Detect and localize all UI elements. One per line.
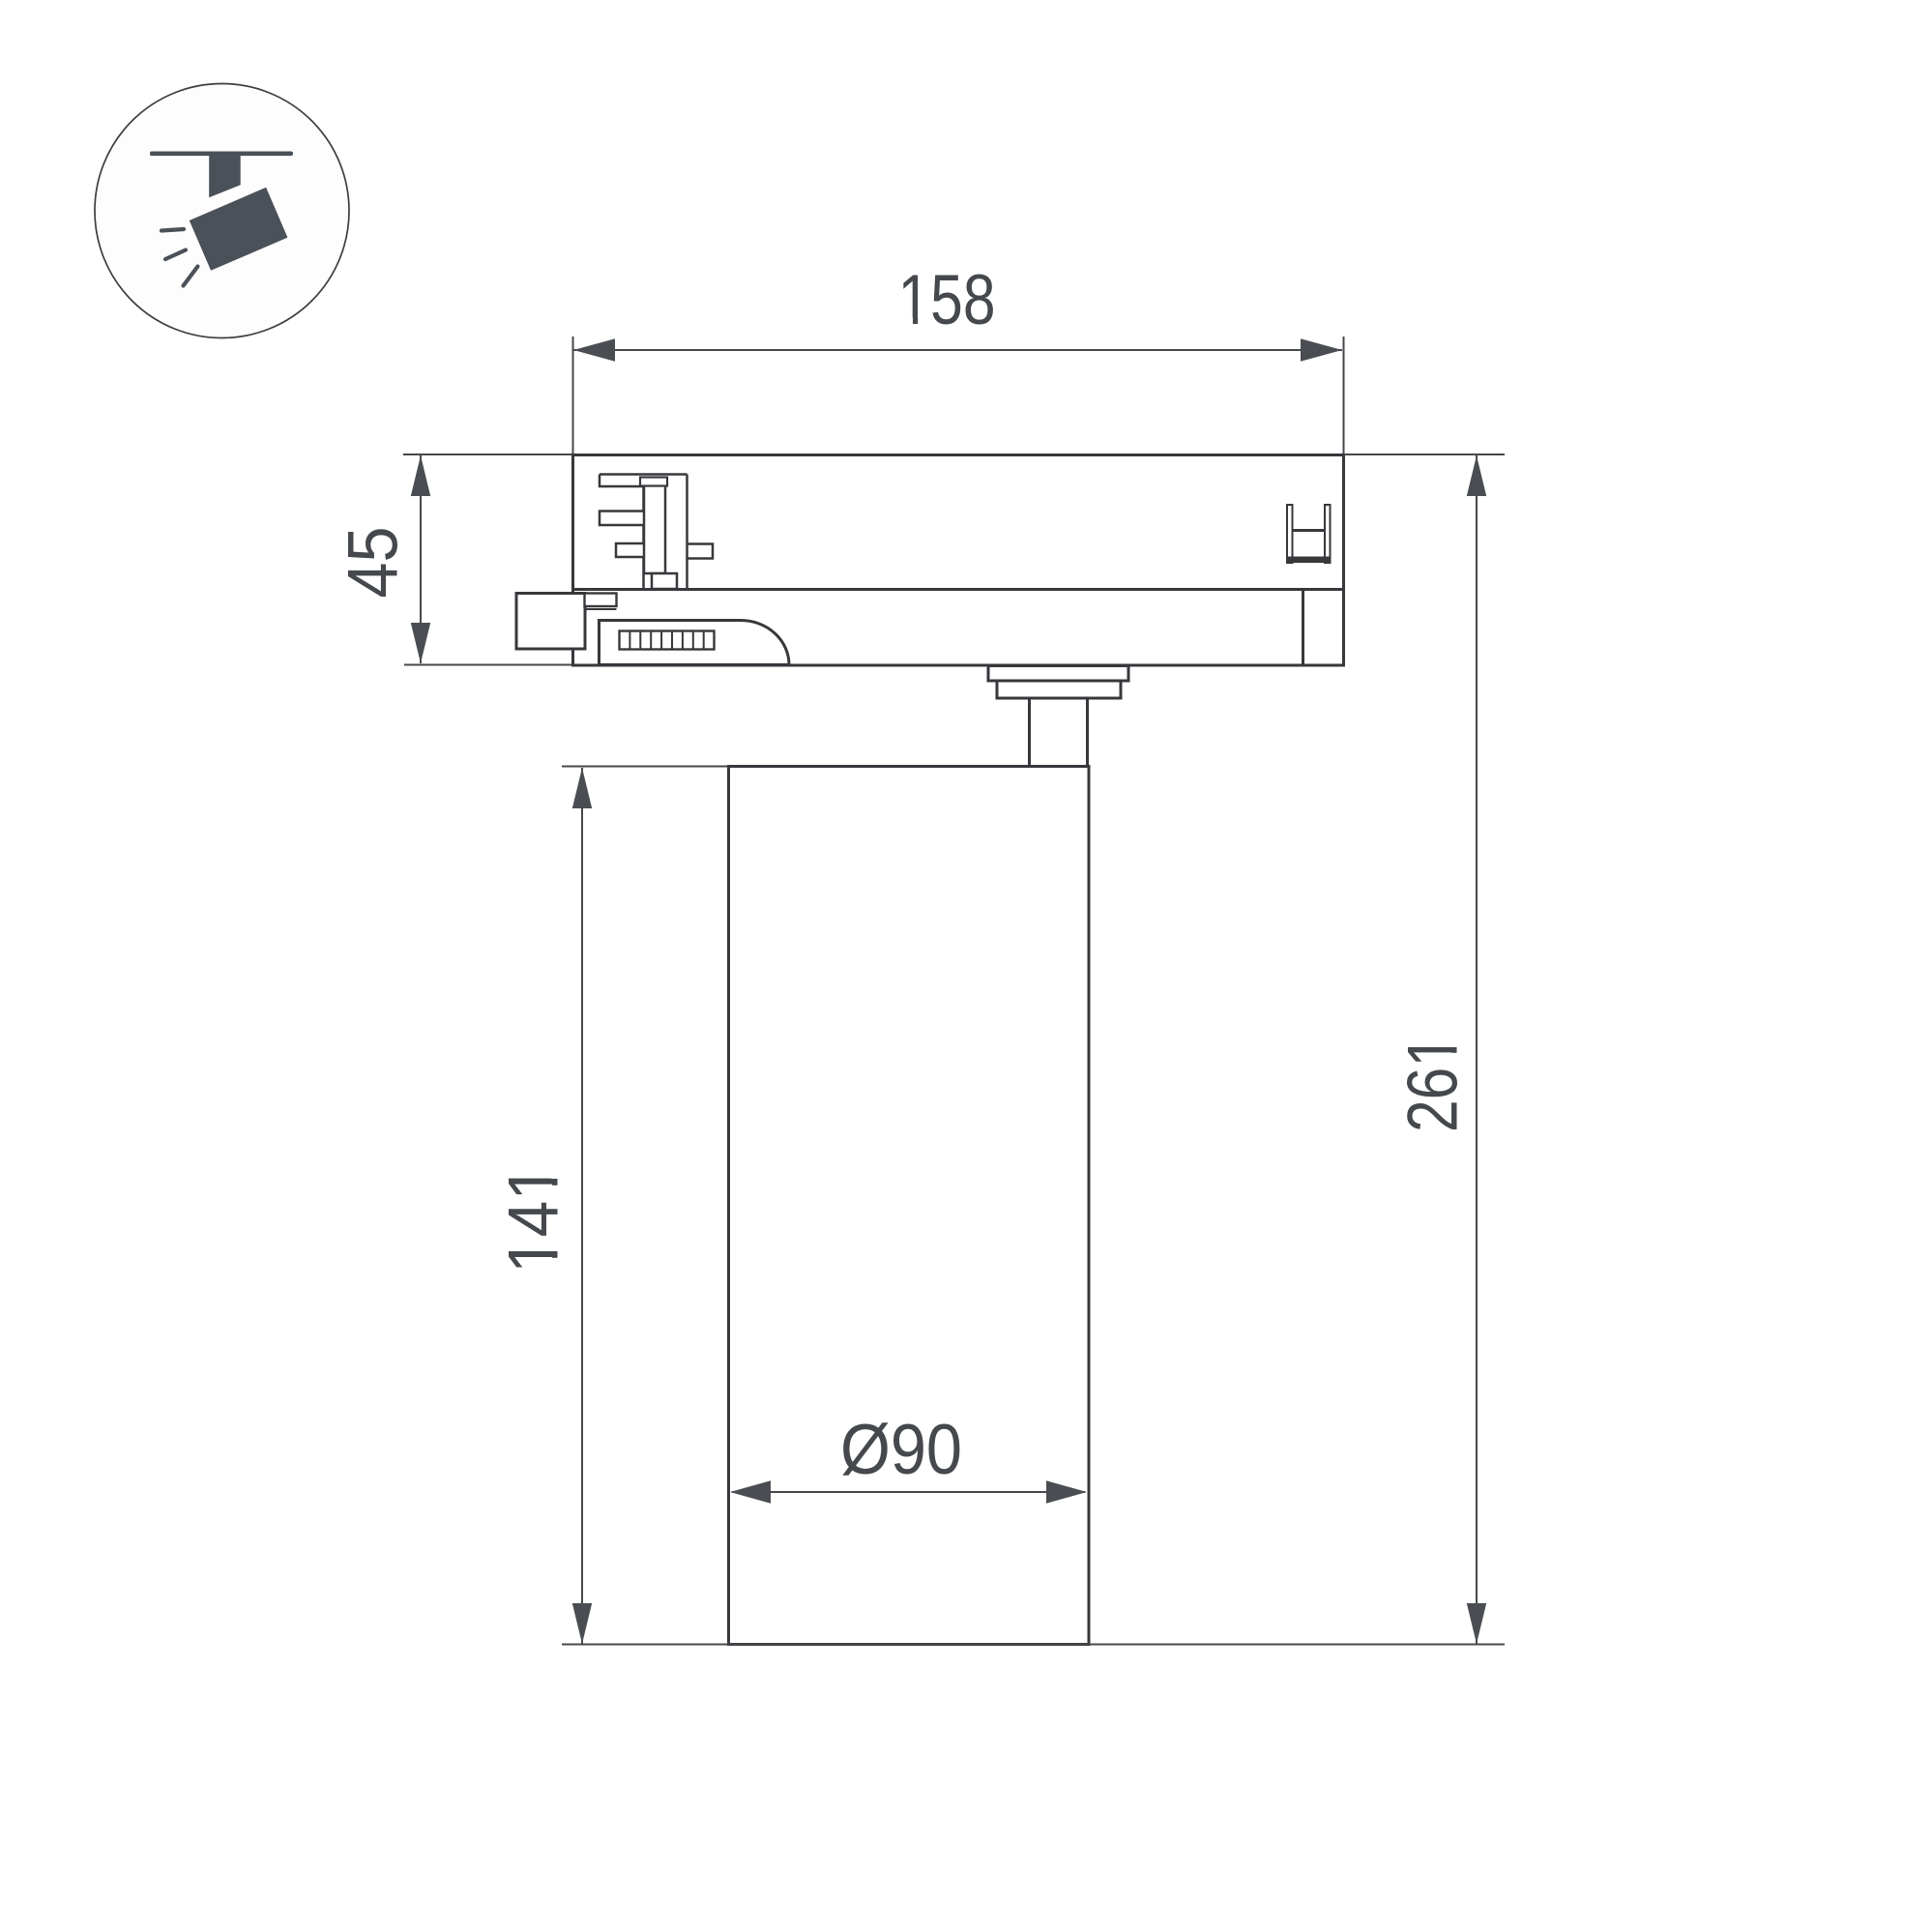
svg-text:Ø90: Ø90 [840, 1411, 962, 1489]
svg-text:158: 158 [898, 261, 996, 339]
svg-text:141: 141 [495, 1164, 573, 1273]
svg-text:261: 261 [1394, 1035, 1473, 1132]
svg-text:45: 45 [335, 527, 413, 599]
